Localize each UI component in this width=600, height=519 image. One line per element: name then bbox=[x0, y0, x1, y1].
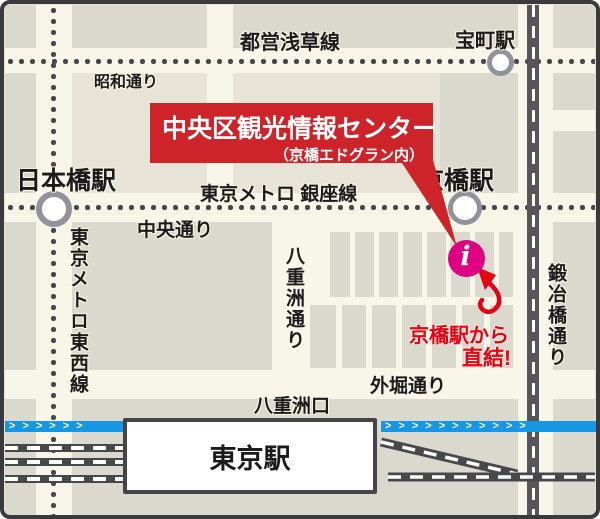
city-block bbox=[5, 5, 37, 49]
expressway-band bbox=[527, 5, 539, 515]
small-block bbox=[355, 232, 374, 297]
tokyo-station-box: 東京駅 bbox=[123, 418, 377, 494]
railway-dashes bbox=[5, 460, 123, 464]
city-block bbox=[553, 73, 595, 110]
railway-dashes bbox=[5, 446, 123, 450]
kyobashi-station-label: 京橋駅 bbox=[419, 161, 494, 197]
takaracho-station-icon bbox=[487, 49, 514, 76]
city-block bbox=[553, 399, 595, 515]
nihonbashi-station-label: 日本橋駅 bbox=[16, 161, 116, 197]
info-center-title: 中央区観光情報センター bbox=[150, 103, 433, 145]
small-block bbox=[342, 305, 366, 368]
info-center-banner: 中央区観光情報センター （京橋エドグラン内） bbox=[150, 103, 433, 163]
kajibashi-dori-label: 鍛冶橋通り bbox=[542, 263, 569, 368]
railway-line bbox=[5, 444, 123, 452]
expressway-dashes bbox=[532, 5, 535, 515]
city-block bbox=[5, 222, 37, 370]
chevron-arrows-icon: >>>>>>>>>>> bbox=[385, 421, 533, 432]
takaracho-station-label: 宝町駅 bbox=[455, 24, 515, 53]
sotobori-dori-label: 外堀通り bbox=[370, 371, 446, 398]
yaesu-dori-label: 八重洲通り bbox=[280, 246, 307, 351]
railway-line bbox=[5, 458, 123, 466]
direct-access-note-line2: 直結! bbox=[462, 342, 511, 372]
info-marker: i bbox=[448, 240, 485, 277]
small-block bbox=[427, 232, 446, 297]
tokyo-station-label: 東京駅 bbox=[210, 437, 291, 476]
tourist-info-center-access-map: >>>>>> >>>>>>>>>>> 東京駅 中央区観光情報センター （京橋エド… bbox=[0, 0, 600, 519]
city-block bbox=[72, 5, 207, 49]
tozai-line-dots bbox=[50, 5, 57, 515]
shinkansen-line-left: >>>>>> bbox=[5, 421, 127, 432]
city-block bbox=[553, 5, 595, 49]
railway-dashes bbox=[5, 477, 123, 481]
city-block bbox=[553, 131, 595, 193]
city-block bbox=[5, 399, 37, 515]
asakusa-line-label: 都営浅草線 bbox=[240, 26, 340, 55]
yaesu-exit-label: 八重洲口 bbox=[254, 391, 330, 418]
chuo-dori-label: 中央通り bbox=[137, 215, 213, 242]
small-block bbox=[379, 232, 398, 297]
small-block bbox=[372, 305, 396, 368]
chevron-arrows-icon: >>>>>> bbox=[9, 421, 90, 432]
railway-line bbox=[5, 475, 123, 483]
small-block bbox=[403, 232, 422, 297]
small-block bbox=[499, 232, 513, 297]
ginza-line-label: 東京メトロ 銀座線 bbox=[200, 179, 357, 206]
small-block bbox=[330, 232, 350, 297]
city-block bbox=[72, 222, 272, 370]
tozai-line-label: 東京メトロ東西線 bbox=[64, 227, 91, 395]
showa-dori-label: 昭和通り bbox=[94, 68, 158, 92]
small-block bbox=[310, 305, 336, 368]
info-icon: i bbox=[460, 243, 470, 270]
info-center-subtitle: （京橋エドグラン内） bbox=[150, 144, 433, 165]
shinkansen-line-right: >>>>>>>>>>> bbox=[381, 421, 599, 432]
